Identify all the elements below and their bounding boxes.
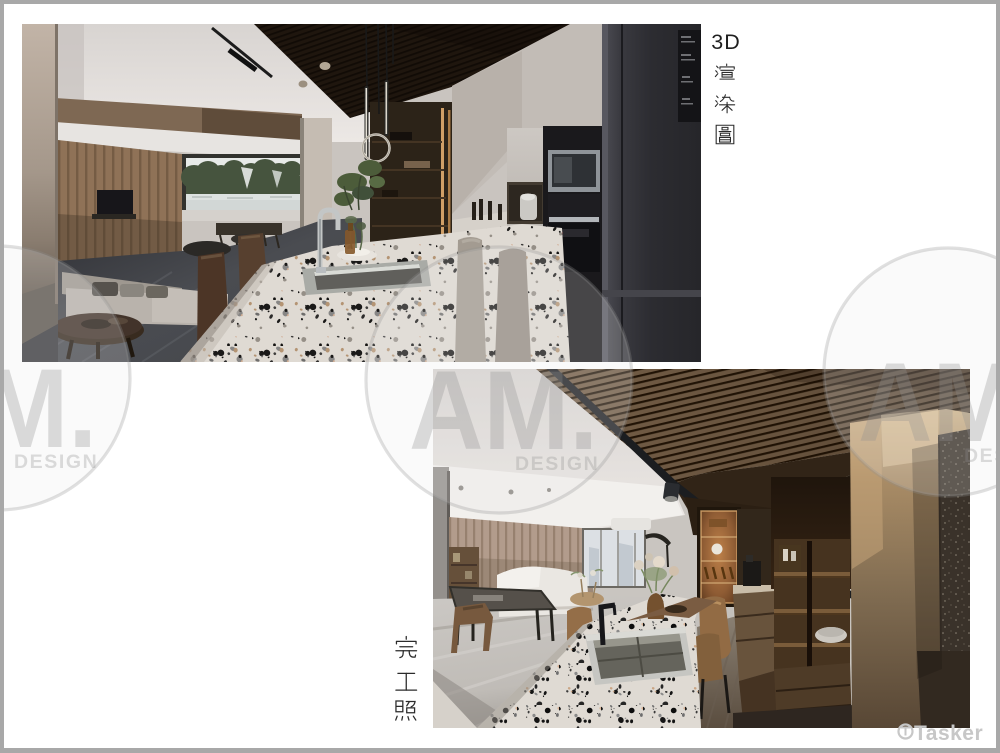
svg-text:DESIGN: DESIGN (515, 453, 599, 475)
svg-text:DESIGN: DESIGN (14, 451, 98, 473)
svg-text:Tasker: Tasker (914, 722, 983, 745)
svg-text:3D: 3D (711, 30, 740, 54)
svg-text:DESIGN: DESIGN (964, 445, 1000, 467)
